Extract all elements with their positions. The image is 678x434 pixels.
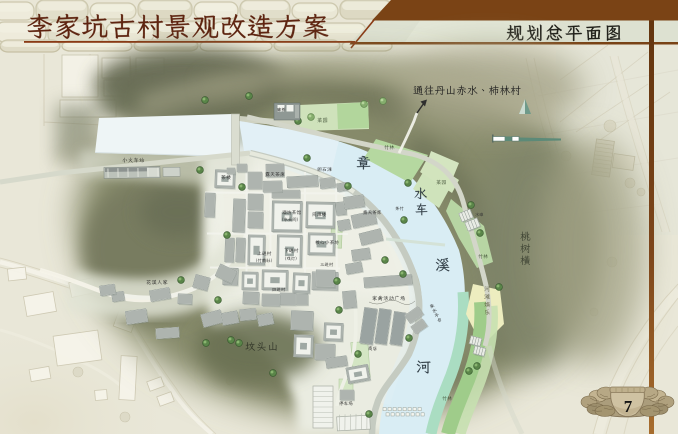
svg-text:7: 7 <box>624 397 633 416</box>
